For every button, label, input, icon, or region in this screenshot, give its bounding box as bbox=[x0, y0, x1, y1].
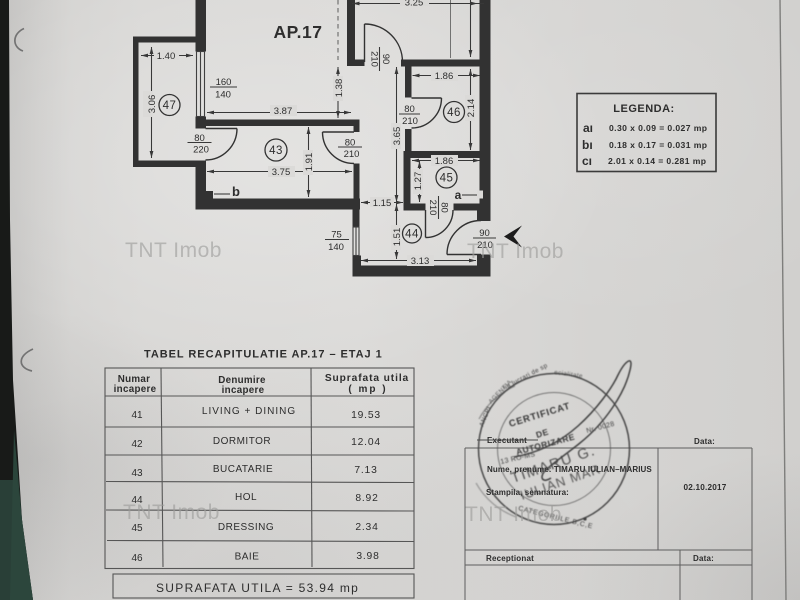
svg-text:3.87: 3.87 bbox=[274, 106, 293, 117]
svg-text:210: 210 bbox=[427, 200, 438, 216]
svg-text:LEGENDA:: LEGENDA: bbox=[613, 103, 674, 115]
svg-text:Suprafata utila: Suprafata utila bbox=[325, 373, 409, 384]
svg-text:SUPRAFATA UTILA = 53.94 mp: SUPRAFATA UTILA = 53.94 mp bbox=[156, 581, 359, 595]
svg-text:160: 160 bbox=[216, 77, 232, 88]
svg-text:45: 45 bbox=[131, 523, 143, 534]
svg-text:bı: bı bbox=[582, 138, 593, 152]
svg-text:incapere: incapere bbox=[222, 385, 265, 396]
svg-text:220: 220 bbox=[193, 145, 209, 156]
svg-text:3.06: 3.06 bbox=[147, 95, 158, 114]
svg-text:HOL: HOL bbox=[235, 492, 257, 503]
svg-text:47: 47 bbox=[163, 100, 177, 112]
svg-text:2.14: 2.14 bbox=[466, 99, 477, 118]
svg-text:TNT Imob: TNT Imob bbox=[465, 503, 562, 526]
svg-text:1.86: 1.86 bbox=[435, 71, 454, 82]
svg-text:0.18 x 0.17 = 0.031 mp: 0.18 x 0.17 = 0.031 mp bbox=[609, 140, 707, 150]
svg-text:02.10.2017: 02.10.2017 bbox=[684, 483, 727, 492]
svg-text:210: 210 bbox=[402, 116, 418, 127]
svg-text:ria lucrari de sp: ria lucrari de sp bbox=[502, 362, 549, 392]
svg-text:LIVING + DINING: LIVING + DINING bbox=[202, 406, 296, 417]
svg-text:1.86: 1.86 bbox=[435, 156, 454, 167]
svg-text:incapere: incapere bbox=[114, 384, 157, 395]
svg-text:Receptionat: Receptionat bbox=[486, 554, 534, 563]
svg-text:1.91: 1.91 bbox=[304, 153, 315, 172]
svg-text:42: 42 bbox=[131, 439, 143, 450]
svg-text:43: 43 bbox=[131, 468, 143, 479]
svg-text:80: 80 bbox=[345, 138, 356, 149]
svg-text:BUCATARIE: BUCATARIE bbox=[213, 464, 273, 475]
svg-text:19.53: 19.53 bbox=[351, 410, 381, 421]
svg-text:TABEL RECAPITULATIE AP.17 – ET: TABEL RECAPITULATIE AP.17 – ETAJ 1 bbox=[144, 349, 383, 361]
svg-text:210: 210 bbox=[369, 51, 380, 67]
svg-text:3.13: 3.13 bbox=[411, 256, 430, 267]
svg-text:BAIE: BAIE bbox=[235, 552, 260, 563]
svg-text:CERTIFICAT: CERTIFICAT bbox=[508, 401, 572, 430]
svg-text:140: 140 bbox=[328, 242, 344, 253]
svg-text:Data:: Data: bbox=[693, 554, 714, 563]
svg-text:90: 90 bbox=[479, 228, 490, 239]
svg-text:DRESSING: DRESSING bbox=[218, 522, 274, 533]
svg-text:140: 140 bbox=[215, 90, 231, 101]
svg-text:3.75: 3.75 bbox=[272, 167, 291, 178]
svg-text:1.27: 1.27 bbox=[413, 172, 424, 191]
svg-text:( mp ): ( mp ) bbox=[348, 384, 387, 395]
svg-text:a: a bbox=[455, 188, 462, 202]
svg-text:AP.17: AP.17 bbox=[274, 22, 323, 42]
svg-text:3.65: 3.65 bbox=[392, 127, 403, 146]
svg-text:0.30 x 0.09 = 0.027 mp: 0.30 x 0.09 = 0.027 mp bbox=[609, 123, 707, 133]
svg-text:80: 80 bbox=[404, 104, 415, 115]
svg-text:8.92: 8.92 bbox=[355, 493, 378, 504]
svg-text:TNT Imob: TNT Imob bbox=[125, 239, 222, 262]
svg-text:90: 90 bbox=[380, 54, 391, 65]
svg-text:210: 210 bbox=[344, 149, 360, 160]
svg-text:80: 80 bbox=[439, 202, 450, 213]
svg-text:2.01 x 0.14 = 0.281 mp: 2.01 x 0.14 = 0.281 mp bbox=[608, 156, 706, 166]
svg-text:80: 80 bbox=[194, 133, 205, 144]
svg-text:3.98: 3.98 bbox=[356, 551, 379, 562]
svg-text:12.04: 12.04 bbox=[351, 437, 381, 448]
svg-text:43: 43 bbox=[269, 145, 283, 157]
svg-text:1.40: 1.40 bbox=[157, 51, 176, 62]
svg-text:DORMITOR: DORMITOR bbox=[213, 436, 271, 447]
svg-text:46: 46 bbox=[131, 553, 143, 564]
svg-text:aı: aı bbox=[583, 121, 593, 135]
svg-text:45: 45 bbox=[440, 173, 454, 185]
svg-text:b: b bbox=[232, 184, 240, 199]
svg-text:TNT Imob: TNT Imob bbox=[123, 501, 220, 524]
svg-text:TNT Imob: TNT Imob bbox=[467, 240, 564, 263]
svg-text:2.34: 2.34 bbox=[355, 522, 378, 533]
svg-text:7.13: 7.13 bbox=[354, 465, 377, 476]
svg-text:ecialitate: ecialitate bbox=[554, 369, 584, 380]
svg-text:46: 46 bbox=[447, 107, 461, 119]
svg-text:cı: cı bbox=[582, 154, 592, 168]
svg-text:1.15: 1.15 bbox=[373, 198, 392, 209]
svg-text:75: 75 bbox=[331, 230, 342, 241]
svg-text:1.51: 1.51 bbox=[392, 228, 403, 247]
svg-text:1.38: 1.38 bbox=[334, 79, 345, 98]
svg-text:41: 41 bbox=[131, 410, 143, 421]
svg-text:Data:: Data: bbox=[694, 437, 715, 446]
svg-text:3.25: 3.25 bbox=[405, 0, 424, 9]
svg-text:44: 44 bbox=[405, 229, 419, 241]
